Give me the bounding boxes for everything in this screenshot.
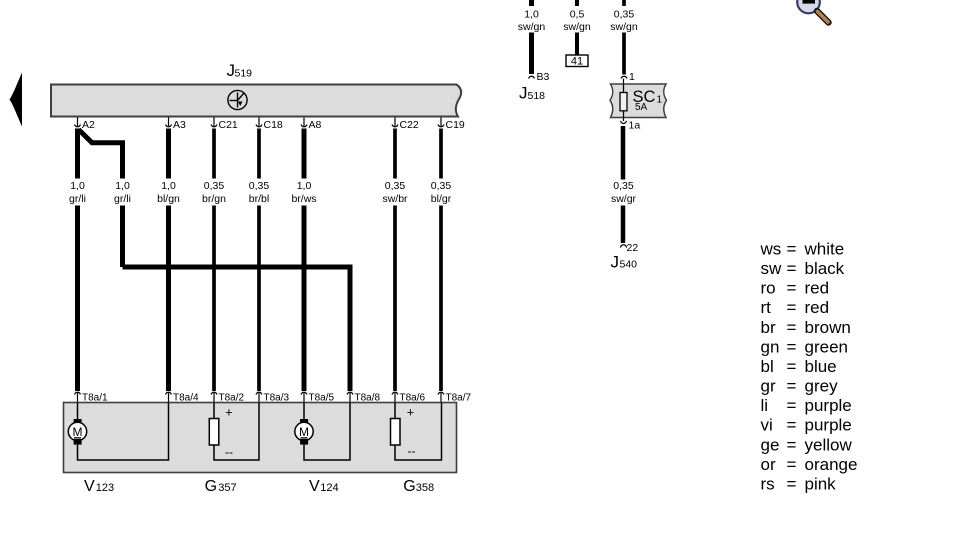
svg-text:1,0: 1,0	[524, 9, 539, 21]
svg-text:vi: vi	[761, 416, 773, 435]
svg-text:gr: gr	[761, 377, 776, 396]
svg-text:B3: B3	[537, 71, 550, 83]
svg-text:123: 123	[96, 482, 114, 494]
svg-text:=: =	[787, 416, 797, 435]
svg-text:black: black	[805, 259, 845, 278]
svg-text:357: 357	[218, 482, 236, 494]
svg-text:grey: grey	[805, 377, 839, 396]
svg-text:124: 124	[320, 482, 338, 494]
svg-text:br/gn: br/gn	[202, 193, 226, 205]
svg-text:yellow: yellow	[805, 435, 853, 454]
svg-text:=: =	[787, 239, 797, 258]
svg-text:sw/gr: sw/gr	[611, 193, 637, 205]
svg-text:41: 41	[571, 55, 583, 67]
svg-text:1a: 1a	[629, 119, 641, 131]
svg-text:C22: C22	[400, 119, 419, 131]
svg-text:519: 519	[235, 68, 253, 80]
svg-text:ro: ro	[761, 279, 776, 298]
svg-text:0,35: 0,35	[614, 9, 635, 21]
svg-text:ws: ws	[760, 239, 782, 258]
svg-text:540: 540	[620, 259, 638, 271]
svg-text:gr/li: gr/li	[114, 193, 131, 205]
svg-text:C21: C21	[219, 119, 238, 131]
svg-text:0,5: 0,5	[570, 9, 585, 21]
svg-text:purple: purple	[805, 396, 852, 415]
svg-text:C18: C18	[264, 119, 283, 131]
svg-text:=: =	[787, 475, 797, 494]
svg-text:A2: A2	[82, 119, 95, 131]
svg-text:=: =	[787, 357, 797, 376]
svg-text:+: +	[407, 406, 414, 420]
svg-text:5A: 5A	[635, 102, 648, 113]
svg-text:1,0: 1,0	[297, 180, 312, 192]
svg-text:rs: rs	[761, 475, 775, 494]
svg-text:bl/gr: bl/gr	[431, 193, 452, 205]
svg-text:=: =	[787, 259, 797, 278]
svg-text:J: J	[611, 253, 620, 272]
svg-text:=: =	[787, 337, 797, 356]
svg-text:=: =	[787, 435, 797, 454]
svg-text:J: J	[519, 84, 528, 103]
svg-text:ge: ge	[761, 435, 780, 454]
svg-text:=: =	[787, 279, 797, 298]
svg-text:+: +	[225, 406, 232, 420]
svg-text:G: G	[403, 478, 415, 495]
svg-text:gn: gn	[761, 337, 780, 356]
svg-text:--: --	[408, 444, 416, 458]
svg-text:0,35: 0,35	[613, 180, 634, 192]
svg-text:0,35: 0,35	[385, 180, 406, 192]
svg-text:A8: A8	[309, 119, 322, 131]
svg-text:br/bl: br/bl	[249, 193, 269, 205]
svg-text:V: V	[309, 478, 320, 495]
svg-text:M: M	[73, 425, 83, 439]
svg-text:22: 22	[627, 242, 639, 254]
svg-text:sw/gn: sw/gn	[518, 21, 546, 33]
svg-text:C19: C19	[446, 119, 465, 131]
svg-text:358: 358	[416, 482, 434, 494]
svg-text:0,35: 0,35	[249, 180, 270, 192]
svg-text:M: M	[299, 425, 309, 439]
svg-text:=: =	[787, 377, 797, 396]
svg-text:br/ws: br/ws	[291, 193, 316, 205]
svg-text:sw/gn: sw/gn	[563, 21, 591, 33]
svg-text:A3: A3	[173, 119, 186, 131]
svg-text:rt: rt	[761, 298, 772, 317]
svg-text:brown: brown	[805, 318, 851, 337]
svg-text:G: G	[205, 478, 217, 495]
svg-text:orange: orange	[805, 455, 858, 474]
svg-text:li: li	[761, 396, 769, 415]
svg-text:gr/li: gr/li	[69, 193, 86, 205]
svg-text:1,0: 1,0	[70, 180, 85, 192]
svg-text:or: or	[761, 455, 776, 474]
svg-text:0,35: 0,35	[204, 180, 225, 192]
svg-text:br: br	[761, 318, 776, 337]
svg-text:=: =	[787, 298, 797, 317]
svg-text:pink: pink	[805, 475, 837, 494]
svg-text:bl: bl	[761, 357, 774, 376]
svg-text:=: =	[787, 455, 797, 474]
svg-text:sw: sw	[761, 259, 783, 278]
svg-text:1,0: 1,0	[161, 180, 176, 192]
svg-text:--: --	[225, 445, 233, 459]
svg-text:518: 518	[528, 90, 546, 102]
svg-text:0,35: 0,35	[431, 180, 452, 192]
svg-text:sw/br: sw/br	[382, 193, 408, 205]
svg-text:bl/gn: bl/gn	[157, 193, 180, 205]
svg-text:blue: blue	[805, 357, 837, 376]
svg-text:red: red	[805, 279, 830, 298]
svg-text:1: 1	[657, 94, 663, 105]
svg-text:red: red	[805, 298, 830, 317]
svg-text:green: green	[805, 337, 848, 356]
svg-text:=: =	[787, 318, 797, 337]
svg-text:sw/gn: sw/gn	[610, 21, 638, 33]
svg-text:=: =	[787, 396, 797, 415]
svg-text:1: 1	[629, 71, 635, 83]
svg-text:white: white	[804, 239, 845, 258]
svg-text:V: V	[84, 478, 95, 495]
svg-text:1,0: 1,0	[115, 180, 130, 192]
svg-text:purple: purple	[805, 416, 852, 435]
